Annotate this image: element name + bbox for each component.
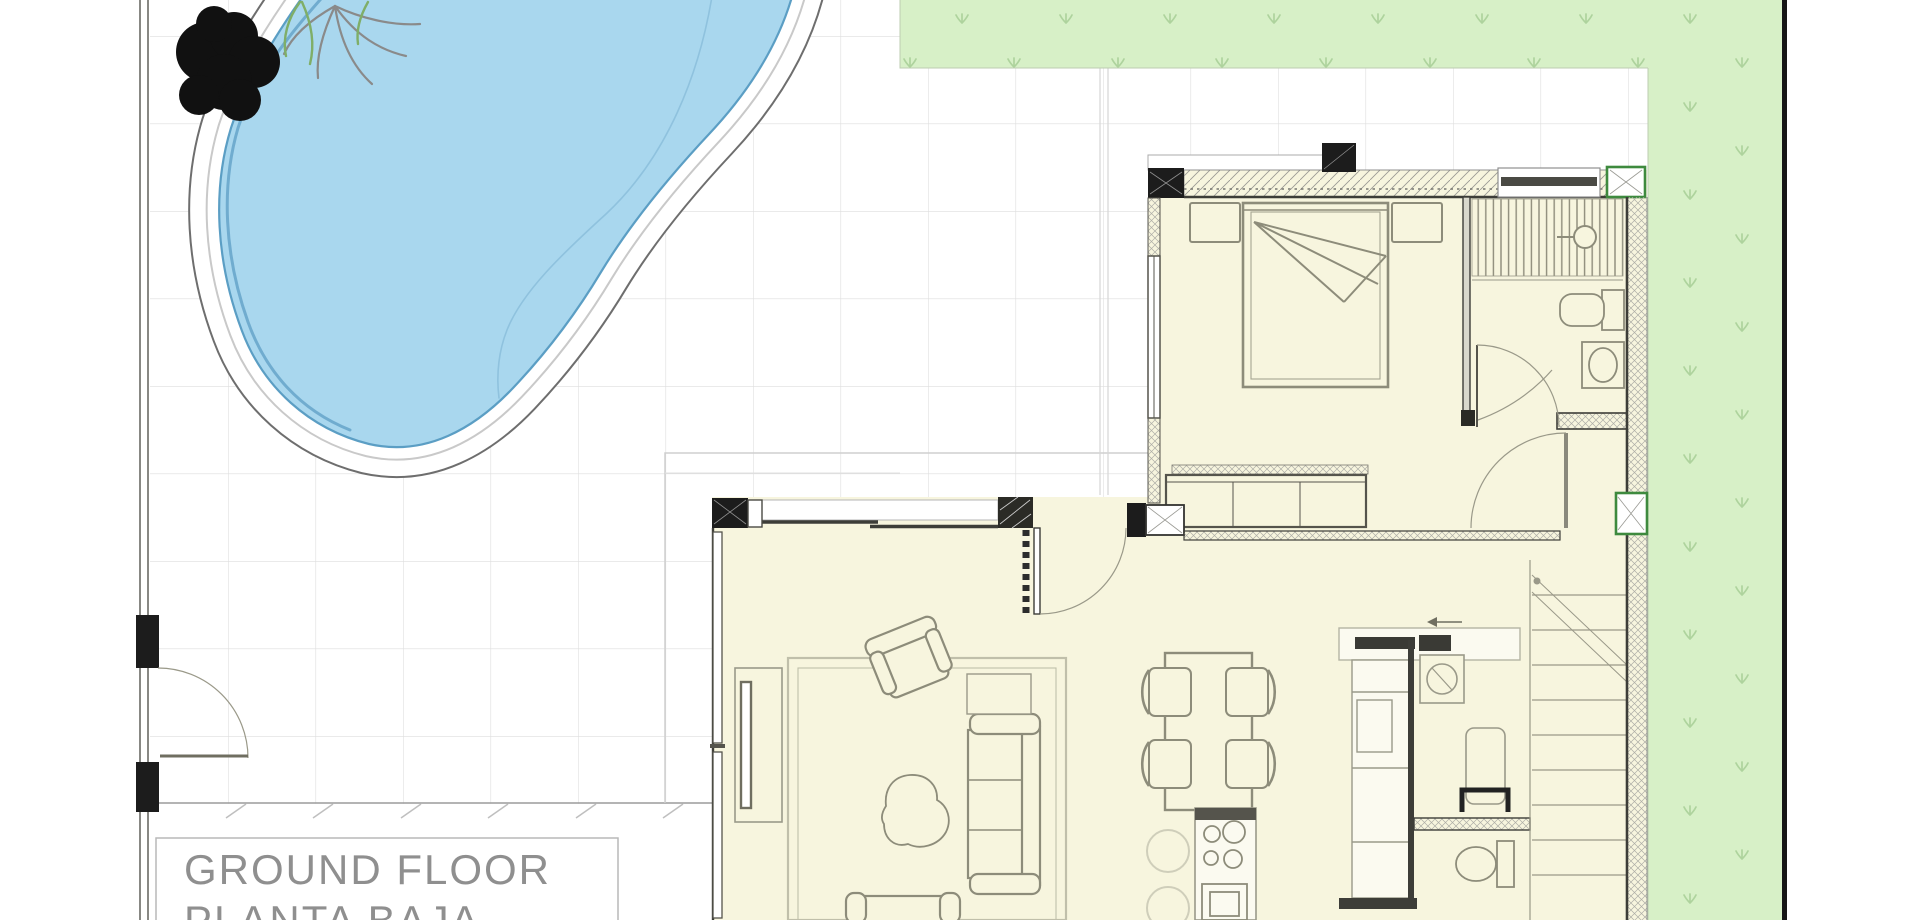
tv-unit bbox=[735, 668, 782, 822]
grass-right-band bbox=[1648, 0, 1786, 920]
wc-wall bbox=[1339, 898, 1417, 909]
shower-floor bbox=[1472, 199, 1623, 276]
living-window bbox=[713, 752, 722, 918]
plan-title-es: PLANTA BAJA bbox=[184, 897, 481, 920]
dining-chair bbox=[1226, 740, 1275, 788]
counter-appliance bbox=[1419, 635, 1451, 651]
kitchen-cabinets bbox=[1352, 660, 1410, 898]
shaft-box bbox=[1146, 505, 1184, 535]
island-counter-edge bbox=[1195, 808, 1256, 820]
boundary-wall-right bbox=[1782, 0, 1787, 920]
boiler bbox=[1466, 728, 1505, 804]
window-mullion bbox=[710, 744, 725, 748]
stair-start-dot bbox=[1534, 578, 1540, 584]
bath-partition-wall bbox=[1463, 197, 1470, 412]
title-box: GROUND FLOOR PLANTA BAJA bbox=[156, 838, 618, 920]
dining-chair bbox=[1142, 740, 1191, 788]
sofa-armrest bbox=[970, 714, 1040, 734]
side-table bbox=[967, 674, 1031, 714]
washing-machine bbox=[1420, 655, 1464, 703]
utility-wall bbox=[1414, 818, 1530, 830]
black-column bbox=[1127, 503, 1146, 537]
sink bbox=[1582, 342, 1624, 388]
north-wall-band bbox=[1184, 531, 1560, 540]
green-column bbox=[1607, 167, 1645, 197]
gate-pier bbox=[136, 762, 159, 812]
black-column bbox=[1148, 168, 1184, 198]
kitchen-sink bbox=[1357, 700, 1392, 752]
black-column bbox=[712, 498, 748, 528]
wardrobe bbox=[1166, 475, 1366, 527]
column-side-box bbox=[748, 500, 762, 527]
double-bed bbox=[1243, 203, 1388, 387]
bedroom-south-wall bbox=[1172, 465, 1368, 474]
floor-plan-canvas: GROUND FLOOR PLANTA BAJA bbox=[0, 0, 1920, 920]
black-column-hatched bbox=[998, 497, 1033, 528]
nightstand bbox=[1392, 203, 1442, 242]
door-hinge-block bbox=[1461, 410, 1475, 426]
counter-appliance bbox=[1355, 637, 1415, 649]
east-wall-insulation bbox=[1627, 197, 1647, 920]
lintel-strip bbox=[762, 500, 998, 520]
dining-chair bbox=[1142, 668, 1191, 716]
bath-south-wall bbox=[1557, 413, 1627, 429]
plan-title-en: GROUND FLOOR bbox=[184, 846, 551, 893]
dining-chair bbox=[1226, 668, 1275, 716]
tv-screen bbox=[741, 682, 751, 808]
sofa-armrest bbox=[970, 874, 1040, 894]
bedroom-left-wall bbox=[1148, 198, 1160, 503]
green-column bbox=[1616, 493, 1647, 534]
porch-beam bbox=[1148, 155, 1332, 170]
sofa-seat bbox=[968, 730, 1022, 878]
bathroom-window-frame bbox=[1501, 177, 1597, 186]
nightstand bbox=[1190, 203, 1240, 242]
kitchen-wall bbox=[1408, 640, 1414, 900]
armchair-partial bbox=[846, 893, 960, 920]
toilet bbox=[1560, 290, 1624, 330]
black-column bbox=[1322, 143, 1356, 172]
ground-floor-plan: GROUND FLOOR PLANTA BAJA bbox=[0, 0, 1920, 920]
sofa bbox=[968, 714, 1040, 894]
gate-pier bbox=[136, 615, 159, 668]
living-window bbox=[713, 532, 722, 743]
entry-partition bbox=[1034, 528, 1040, 614]
